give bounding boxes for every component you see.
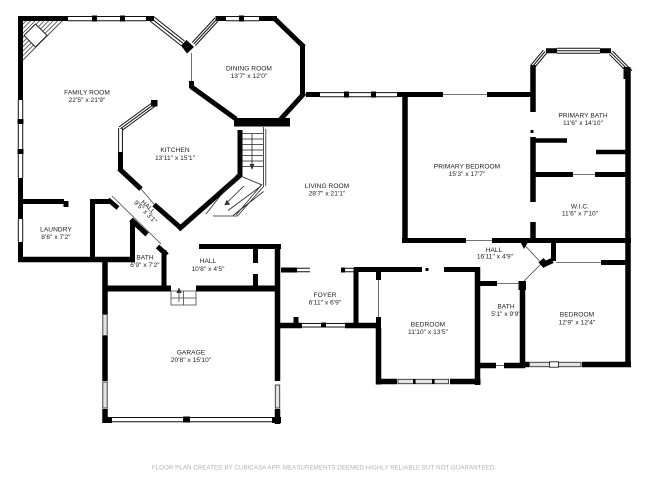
svg-text:28'7" x 21'1": 28'7" x 21'1" (309, 191, 346, 198)
svg-text:13'7" x 12'0": 13'7" x 12'0" (231, 73, 268, 80)
svg-text:BATH: BATH (497, 304, 514, 311)
svg-text:BEDROOM: BEDROOM (411, 322, 445, 329)
svg-text:DINING ROOM: DINING ROOM (226, 66, 272, 73)
svg-text:11'6" x 7'10": 11'6" x 7'10" (562, 211, 599, 218)
svg-text:12'9" x 12'4": 12'9" x 12'4" (559, 319, 596, 326)
svg-text:20'8" x 15'10": 20'8" x 15'10" (171, 357, 212, 364)
svg-text:LAUNDRY: LAUNDRY (40, 227, 72, 234)
svg-text:FOYER: FOYER (314, 292, 337, 299)
svg-text:FAMILY ROOM: FAMILY ROOM (64, 90, 110, 97)
svg-text:LIVING ROOM: LIVING ROOM (305, 183, 350, 190)
svg-text:11'6" x 14'10": 11'6" x 14'10" (563, 120, 604, 127)
svg-text:6'11" x 6'9": 6'11" x 6'9" (309, 300, 342, 307)
svg-text:11'10" x 13'5": 11'10" x 13'5" (408, 329, 449, 336)
svg-text:8'6" x 7'2": 8'6" x 7'2" (41, 234, 71, 241)
svg-text:13'11" x 15'1": 13'11" x 15'1" (155, 155, 196, 162)
svg-text:16'11" x 4'9": 16'11" x 4'9" (477, 254, 514, 261)
svg-text:FLOOR PLAN CREATED BY CUBICASA: FLOOR PLAN CREATED BY CUBICASA APP. MEAS… (152, 464, 496, 471)
svg-text:BEDROOM: BEDROOM (560, 312, 594, 319)
svg-text:HALL: HALL (200, 258, 217, 265)
svg-text:5'1" x 9'9": 5'1" x 9'9" (491, 311, 521, 318)
svg-text:GARAGE: GARAGE (177, 350, 206, 357)
svg-text:BATH: BATH (136, 255, 153, 262)
svg-text:6'9" x 7'2": 6'9" x 7'2" (130, 262, 160, 269)
svg-text:15'3" x 17'7": 15'3" x 17'7" (449, 171, 486, 178)
svg-text:KITCHEN: KITCHEN (160, 147, 189, 154)
svg-text:PRIMARY BEDROOM: PRIMARY BEDROOM (434, 164, 500, 171)
svg-text:PRIMARY BATH: PRIMARY BATH (558, 113, 608, 120)
svg-text:10'8" x 4'5": 10'8" x 4'5" (191, 266, 225, 273)
svg-text:22'5" x 21'9": 22'5" x 21'9" (69, 97, 106, 104)
